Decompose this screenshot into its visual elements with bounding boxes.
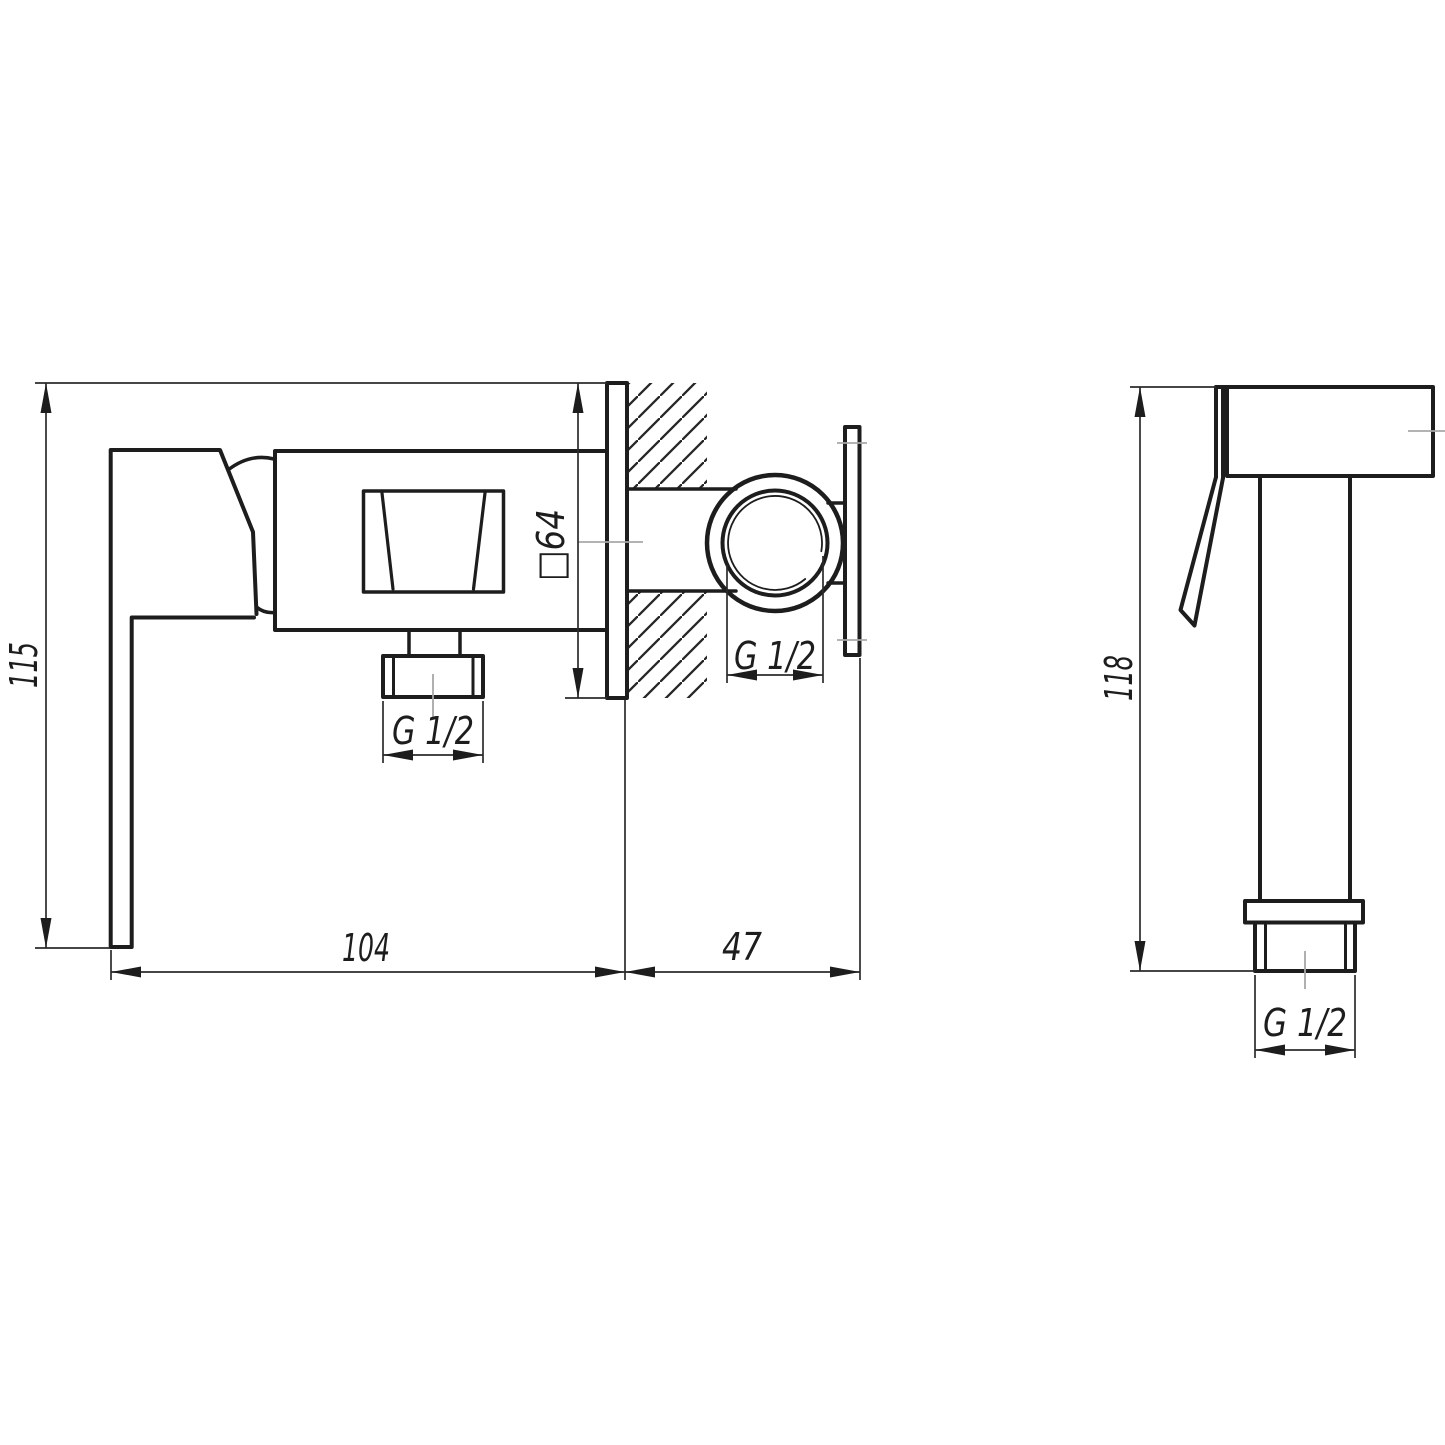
dim-text-104: 104 [342, 926, 390, 970]
arrow-104-right [595, 967, 625, 978]
trigger-mount-strip [1216, 387, 1223, 478]
wall-flange-plate [607, 383, 627, 698]
inlet-elbow-inner-circle [723, 491, 828, 596]
sprayer-outlines [1181, 387, 1434, 971]
mixer-dimension-lines [35, 383, 860, 980]
mixer-dimension-arrows [41, 383, 861, 978]
dim-text-sprayer-thread: G 1/2 [1263, 1001, 1347, 1045]
arrow-sprayer-thread-right [1325, 1045, 1355, 1056]
wall-hatch-upper [627, 383, 707, 489]
dim-text-47: 47 [722, 925, 762, 969]
dim-text-outlet-thread: G 1/2 [392, 709, 474, 753]
sprayer-tube [1260, 476, 1350, 901]
sprayer-dimension-arrows [1135, 387, 1356, 1056]
sprayer-trigger [1181, 477, 1224, 626]
handle-dome-arc [228, 457, 274, 470]
cartridge-trapezoid [382, 493, 485, 589]
arrow-64-top [573, 383, 584, 413]
arrow-104-left [111, 967, 141, 978]
mixer-front-view: 115 □64 104 47 G 1/2 G 1/2 [2, 383, 867, 980]
dim-text-inlet-thread: G 1/2 [734, 634, 816, 678]
outlet-neck [409, 632, 460, 656]
dim-text-115: 115 [2, 642, 46, 688]
sprayer-dimension-lines [1130, 387, 1355, 1058]
arrow-115-bottom [41, 918, 52, 948]
dim-text-118: 118 [1097, 655, 1141, 701]
arrow-47-right [830, 967, 860, 978]
sprayer-centerlines [1305, 431, 1445, 989]
drawing-canvas: 115 □64 104 47 G 1/2 G 1/2 [0, 0, 1445, 1445]
arrow-118-top [1135, 387, 1146, 417]
elbow-flange-plate [845, 427, 860, 655]
arrow-115-top [41, 383, 52, 413]
mixer-handle [111, 450, 257, 947]
technical-drawing: 115 □64 104 47 G 1/2 G 1/2 [0, 0, 1445, 1445]
arrow-sprayer-thread-left [1255, 1045, 1285, 1056]
sprayer-head [1216, 387, 1433, 476]
sprayer-flange [1245, 901, 1363, 923]
arrow-64-bottom [573, 668, 584, 698]
arrow-47-left [625, 967, 655, 978]
sprayer-view: 118 G 1/2 [1097, 387, 1445, 1058]
wall-hatch-lower [627, 591, 707, 698]
arrow-118-bottom [1135, 941, 1146, 971]
wall-hatching [627, 383, 707, 698]
dim-text-square64: □64 [529, 509, 573, 581]
handle-lower-arc [257, 607, 276, 613]
thread-arc [728, 496, 822, 590]
